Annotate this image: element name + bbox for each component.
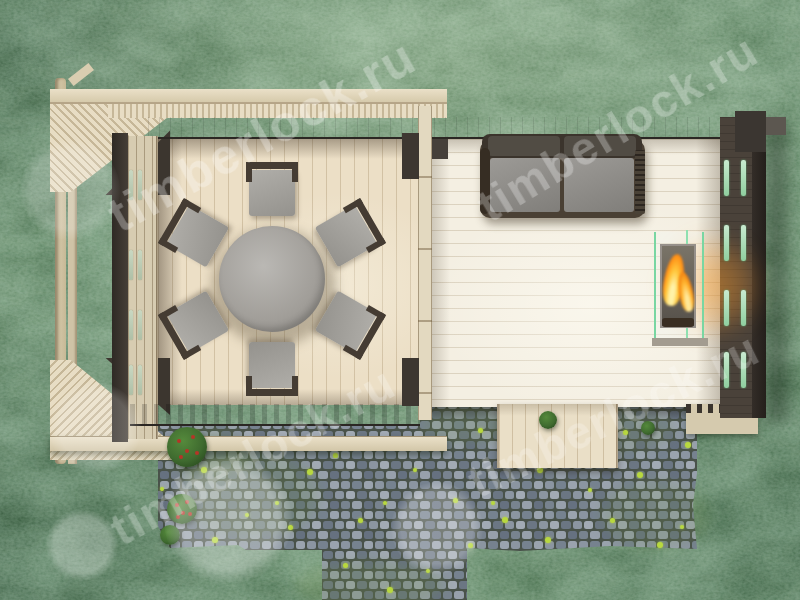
- red-flower: [185, 500, 189, 504]
- wall-slot-window: [741, 160, 746, 196]
- divider-wall-stub-top: [402, 133, 419, 179]
- chair-back-frame: [246, 162, 298, 169]
- deck-step-extension: [497, 404, 618, 468]
- sofa: [480, 134, 645, 220]
- moss-dot: [502, 517, 508, 523]
- moss-dot: [201, 467, 207, 473]
- divider-wall-stub-bottom: [402, 358, 419, 406]
- moss-dot: [545, 537, 551, 543]
- north-wall: [148, 117, 757, 139]
- sofa-seat-cushion: [490, 158, 560, 212]
- beam-stub-north-east: [766, 117, 786, 135]
- cabin-wall-stub: [432, 139, 448, 159]
- shrub: [539, 411, 557, 429]
- chair-frame-side: [246, 162, 252, 182]
- moss-dot: [468, 543, 473, 548]
- sofa-back-cushion: [564, 136, 636, 156]
- dining-chair: [246, 338, 298, 396]
- moss-dot: [657, 542, 663, 548]
- moss-dot: [307, 469, 313, 475]
- shrub: [641, 421, 655, 435]
- wall-slot-window: [138, 310, 142, 340]
- round-dining-table: [219, 226, 325, 332]
- moss-dot: [358, 518, 363, 523]
- pergola-top-beam: [50, 89, 447, 104]
- moss-dot: [288, 525, 293, 530]
- west-wall-outer-edge: [112, 133, 128, 442]
- chair-frame-side: [292, 376, 298, 396]
- moss-dot: [343, 563, 348, 568]
- wall-slot-window: [138, 365, 142, 395]
- moss-dot: [453, 498, 458, 503]
- moss-dot: [275, 501, 279, 505]
- wall-slot-window: [724, 225, 729, 261]
- red-flower: [175, 503, 179, 507]
- shrub: [160, 525, 180, 545]
- wall-slot-window: [138, 250, 142, 280]
- chair-frame-side: [292, 162, 298, 182]
- moss-dot: [588, 488, 592, 492]
- moss-dot: [685, 442, 691, 448]
- render-canvas: timberlock.rutimberlock.rutimberlock.rut…: [0, 0, 800, 600]
- moss-dot: [212, 537, 218, 543]
- red-flower: [176, 515, 180, 519]
- wall-slot-window: [129, 170, 133, 200]
- wall-slot-window: [724, 352, 729, 388]
- red-flower: [179, 455, 183, 459]
- moss-dot: [160, 487, 164, 491]
- sofa-armrest-left: [480, 148, 490, 214]
- sofa-seat-cushion: [564, 158, 634, 212]
- wall-slot-window: [741, 290, 746, 326]
- wall-slot-window: [724, 160, 729, 196]
- wall-slot-window: [138, 170, 142, 200]
- shrub: [167, 427, 207, 467]
- sofa-armrest-right: [635, 150, 645, 214]
- chair-seat: [249, 342, 295, 388]
- south-threshold-wall: [130, 404, 420, 426]
- red-flower: [195, 451, 199, 455]
- chair-back-frame: [246, 389, 298, 396]
- moss-dot: [245, 513, 249, 517]
- moss-dot: [426, 569, 430, 573]
- moss-dot: [413, 468, 417, 472]
- wall-slot-window: [129, 250, 133, 280]
- divider-beam: [418, 106, 432, 420]
- moss-dot: [478, 428, 483, 433]
- corner-post-north-east: [735, 111, 766, 152]
- bio-fireplace: [648, 226, 728, 346]
- moss-dot: [680, 525, 684, 529]
- dining-chair: [246, 162, 298, 220]
- red-flower: [185, 449, 189, 453]
- wall-slot-window: [129, 365, 133, 395]
- pergola-bottom-beam: [50, 436, 447, 451]
- sofa-back-cushion: [488, 136, 560, 156]
- moss-dot: [333, 453, 338, 458]
- red-flower: [191, 435, 195, 439]
- chair-frame-side: [246, 376, 252, 396]
- wall-slot-window: [741, 352, 746, 388]
- wall-slot-window: [741, 225, 746, 261]
- red-flower: [177, 439, 181, 443]
- moss-dot: [637, 472, 643, 478]
- fireplace-base: [652, 338, 708, 346]
- overgrowth-tint: [600, 480, 710, 550]
- shrub: [167, 494, 197, 524]
- moss-dot: [623, 430, 628, 435]
- chair-seat: [249, 170, 295, 216]
- moss-dot: [610, 518, 615, 523]
- pergola-roof-slats: [108, 102, 447, 118]
- moss-dot: [383, 501, 387, 505]
- red-flower: [188, 512, 192, 516]
- wall-slot-window: [129, 310, 133, 340]
- moss-dot: [387, 587, 393, 593]
- red-flower: [181, 511, 185, 515]
- wall-slot-window: [724, 290, 729, 326]
- moss-dot: [491, 501, 495, 505]
- embers: [662, 318, 694, 327]
